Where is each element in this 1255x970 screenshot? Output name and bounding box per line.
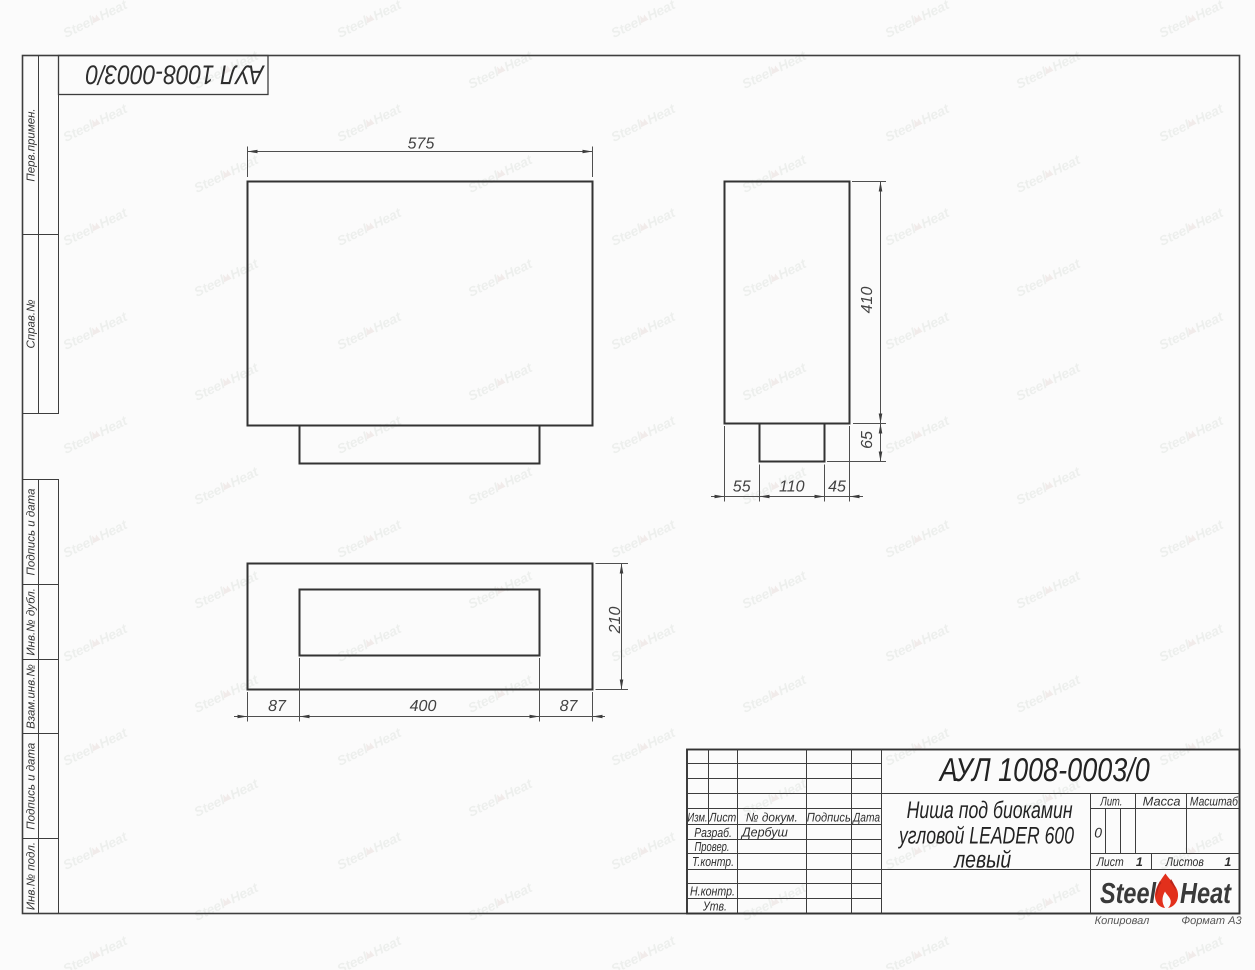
svg-text:Н.контр.: Н.контр. bbox=[690, 884, 735, 899]
svg-text:87: 87 bbox=[560, 698, 579, 715]
svg-text:Подпись и дата: Подпись и дата bbox=[25, 489, 37, 576]
svg-text:Инв.№ дубл.: Инв.№ дубл. bbox=[25, 588, 37, 656]
svg-text:Дербуш: Дербуш bbox=[740, 825, 788, 840]
svg-text:Взам.инв.№: Взам.инв.№ bbox=[25, 664, 37, 729]
svg-text:Формат А3: Формат А3 bbox=[1181, 915, 1242, 927]
svg-text:210: 210 bbox=[607, 607, 624, 635]
svg-text:Steel: Steel bbox=[1100, 878, 1157, 910]
svg-text:Масштаб: Масштаб bbox=[1190, 794, 1239, 808]
svg-text:Дата: Дата bbox=[851, 811, 880, 825]
svg-text:Heat: Heat bbox=[1180, 878, 1232, 910]
svg-text:Т.контр.: Т.контр. bbox=[692, 854, 734, 869]
svg-text:АУЛ 1008-0003/0: АУЛ 1008-0003/0 bbox=[938, 751, 1150, 788]
svg-text:Копировал: Копировал bbox=[1095, 915, 1150, 927]
svg-text:65: 65 bbox=[859, 431, 876, 449]
svg-text:Утв.: Утв. bbox=[702, 899, 727, 914]
svg-text:575: 575 bbox=[408, 135, 435, 152]
svg-text:Провер.: Провер. bbox=[695, 839, 730, 854]
svg-text:110: 110 bbox=[779, 479, 805, 496]
svg-text:угловой LEADER 600: угловой LEADER 600 bbox=[898, 823, 1075, 850]
svg-text:400: 400 bbox=[410, 698, 437, 715]
svg-text:87: 87 bbox=[268, 698, 287, 715]
svg-text:Подпись: Подпись bbox=[807, 811, 851, 825]
svg-text:1: 1 bbox=[1136, 855, 1143, 869]
svg-text:Лист: Лист bbox=[1096, 855, 1124, 869]
svg-text:Подпись и дата: Подпись и дата bbox=[25, 743, 37, 830]
svg-text:Инв.№ подл.: Инв.№ подл. bbox=[25, 842, 37, 910]
svg-text:1: 1 bbox=[1224, 855, 1231, 869]
svg-text:45: 45 bbox=[828, 479, 846, 496]
svg-text:Листов: Листов bbox=[1165, 855, 1204, 869]
svg-text:Лит.: Лит. bbox=[1100, 794, 1123, 808]
svg-text:Перв.примен.: Перв.примен. bbox=[25, 108, 37, 181]
svg-text:Лист: Лист bbox=[708, 811, 736, 825]
svg-text:№ докум.: № докум. bbox=[746, 811, 798, 825]
svg-text:55: 55 bbox=[733, 479, 751, 496]
svg-text:Масса: Масса bbox=[1143, 794, 1181, 808]
svg-text:Справ.№: Справ.№ bbox=[25, 299, 37, 349]
svg-text:Изм.: Изм. bbox=[688, 811, 708, 825]
svg-text:0: 0 bbox=[1094, 824, 1102, 840]
svg-text:АУЛ 1008-0003/0: АУЛ 1008-0003/0 bbox=[86, 60, 266, 90]
svg-text:Разраб.: Разраб. bbox=[694, 825, 732, 840]
svg-text:левый: левый bbox=[953, 847, 1012, 874]
svg-text:410: 410 bbox=[859, 287, 876, 314]
svg-text:Ниша под биокамин: Ниша под биокамин bbox=[907, 797, 1073, 824]
